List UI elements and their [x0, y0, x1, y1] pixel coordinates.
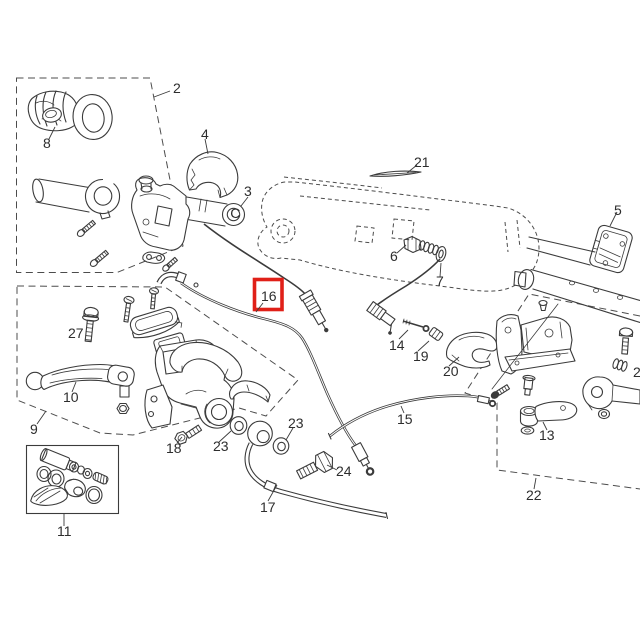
svg-text:20: 20	[443, 363, 459, 379]
svg-text:22: 22	[526, 487, 542, 503]
svg-text:19: 19	[413, 348, 429, 364]
svg-text:6: 6	[390, 248, 398, 264]
svg-text:26: 26	[633, 364, 640, 380]
svg-text:2: 2	[173, 80, 181, 96]
svg-text:10: 10	[63, 389, 79, 405]
svg-text:9: 9	[30, 421, 38, 437]
svg-text:17: 17	[260, 499, 276, 515]
svg-text:3: 3	[244, 183, 252, 199]
svg-text:15: 15	[397, 411, 413, 427]
svg-text:14: 14	[389, 337, 405, 353]
svg-text:21: 21	[414, 154, 430, 170]
svg-text:16: 16	[261, 288, 277, 304]
svg-text:27: 27	[68, 325, 84, 341]
svg-text:C: C	[230, 205, 240, 221]
svg-text:24: 24	[336, 463, 352, 479]
svg-text:18: 18	[166, 440, 182, 456]
svg-text:23: 23	[288, 415, 304, 431]
